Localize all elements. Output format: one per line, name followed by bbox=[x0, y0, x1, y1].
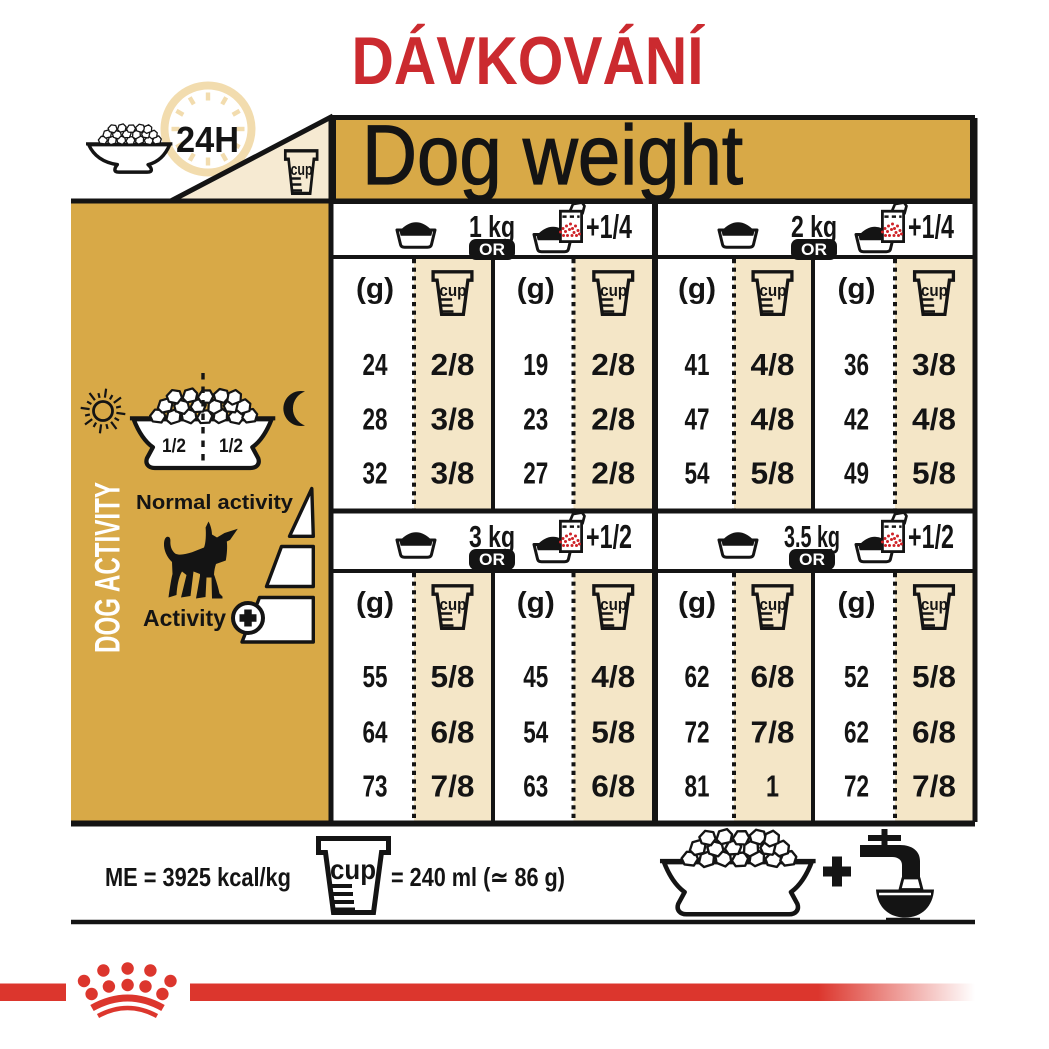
svg-text:2/8: 2/8 bbox=[431, 347, 475, 382]
svg-text:+1/4: +1/4 bbox=[908, 208, 954, 245]
svg-text:36: 36 bbox=[844, 347, 869, 382]
svg-text:3/8: 3/8 bbox=[431, 456, 475, 491]
svg-text:72: 72 bbox=[844, 769, 869, 804]
svg-text:5/8: 5/8 bbox=[912, 659, 956, 694]
svg-text:OR: OR bbox=[479, 241, 505, 259]
svg-text:24H: 24H bbox=[176, 119, 239, 160]
svg-text:2/8: 2/8 bbox=[591, 402, 635, 437]
svg-text:(g): (g) bbox=[678, 587, 716, 619]
svg-text:3/8: 3/8 bbox=[912, 347, 956, 382]
svg-text:1/2: 1/2 bbox=[219, 436, 243, 457]
svg-text:3 kg: 3 kg bbox=[469, 519, 515, 554]
svg-text:5/8: 5/8 bbox=[431, 659, 475, 694]
svg-text:cup: cup bbox=[330, 854, 376, 885]
svg-text:62: 62 bbox=[685, 659, 710, 694]
svg-text:49: 49 bbox=[844, 456, 869, 491]
svg-text:81: 81 bbox=[685, 769, 710, 804]
svg-text:2 kg: 2 kg bbox=[791, 209, 837, 244]
svg-text:Normal activity: Normal activity bbox=[136, 491, 294, 514]
svg-text:3.5 kg: 3.5 kg bbox=[784, 519, 840, 554]
svg-text:3/8: 3/8 bbox=[431, 402, 475, 437]
svg-text:(g): (g) bbox=[517, 273, 555, 305]
svg-text:6/8: 6/8 bbox=[431, 715, 475, 750]
svg-text:5/8: 5/8 bbox=[591, 715, 635, 750]
svg-text:Dog weight: Dog weight bbox=[362, 108, 743, 202]
svg-text:6/8: 6/8 bbox=[751, 659, 795, 694]
svg-text:(g): (g) bbox=[356, 587, 394, 619]
svg-text:4/8: 4/8 bbox=[751, 347, 795, 382]
svg-text:Activity: Activity bbox=[143, 605, 226, 631]
svg-text:64: 64 bbox=[363, 715, 389, 750]
svg-text:45: 45 bbox=[523, 659, 548, 694]
svg-text:54: 54 bbox=[523, 715, 549, 750]
svg-text:32: 32 bbox=[363, 456, 388, 491]
svg-text:OR: OR bbox=[801, 241, 827, 259]
svg-text:7/8: 7/8 bbox=[431, 769, 475, 804]
svg-text:DOG ACTIVITY: DOG ACTIVITY bbox=[89, 482, 128, 653]
svg-text:19: 19 bbox=[523, 347, 548, 382]
svg-text:27: 27 bbox=[523, 456, 548, 491]
svg-text:54: 54 bbox=[685, 456, 711, 491]
svg-text:72: 72 bbox=[685, 715, 710, 750]
svg-text:52: 52 bbox=[844, 659, 869, 694]
svg-text:(g): (g) bbox=[356, 273, 394, 305]
svg-text:+1/2: +1/2 bbox=[586, 518, 632, 555]
svg-text:ME = 3925 kcal/kg: ME = 3925 kcal/kg bbox=[105, 862, 291, 892]
svg-text:DÁVKOVÁNÍ: DÁVKOVÁNÍ bbox=[352, 23, 706, 99]
svg-text:= 240 ml (≃ 86 g): = 240 ml (≃ 86 g) bbox=[391, 862, 565, 892]
svg-text:23: 23 bbox=[523, 402, 548, 437]
svg-text:(g): (g) bbox=[838, 273, 876, 305]
svg-text:6/8: 6/8 bbox=[912, 715, 956, 750]
svg-text:28: 28 bbox=[363, 402, 388, 437]
svg-text:(g): (g) bbox=[678, 273, 716, 305]
svg-text:73: 73 bbox=[363, 769, 388, 804]
svg-text:7/8: 7/8 bbox=[912, 769, 956, 804]
svg-text:24: 24 bbox=[363, 347, 389, 382]
svg-text:55: 55 bbox=[363, 659, 388, 694]
svg-text:62: 62 bbox=[844, 715, 869, 750]
svg-text:2/8: 2/8 bbox=[591, 456, 635, 491]
svg-text:5/8: 5/8 bbox=[912, 456, 956, 491]
svg-text:2/8: 2/8 bbox=[591, 347, 635, 382]
svg-text:63: 63 bbox=[523, 769, 548, 804]
svg-text:(g): (g) bbox=[838, 587, 876, 619]
svg-text:+1/4: +1/4 bbox=[586, 208, 632, 245]
svg-text:OR: OR bbox=[799, 551, 825, 569]
svg-text:(g): (g) bbox=[517, 587, 555, 619]
svg-text:1/2: 1/2 bbox=[162, 436, 186, 457]
svg-text:OR: OR bbox=[479, 551, 505, 569]
svg-text:1: 1 bbox=[766, 769, 779, 804]
svg-text:4/8: 4/8 bbox=[912, 402, 956, 437]
svg-text:1 kg: 1 kg bbox=[469, 209, 515, 244]
svg-text:7/8: 7/8 bbox=[751, 715, 795, 750]
svg-text:4/8: 4/8 bbox=[591, 659, 635, 694]
svg-text:47: 47 bbox=[685, 402, 710, 437]
svg-text:5/8: 5/8 bbox=[751, 456, 795, 491]
svg-text:+1/2: +1/2 bbox=[908, 518, 954, 555]
svg-text:4/8: 4/8 bbox=[751, 402, 795, 437]
svg-text:41: 41 bbox=[685, 347, 710, 382]
svg-text:42: 42 bbox=[844, 402, 869, 437]
svg-text:6/8: 6/8 bbox=[591, 769, 635, 804]
